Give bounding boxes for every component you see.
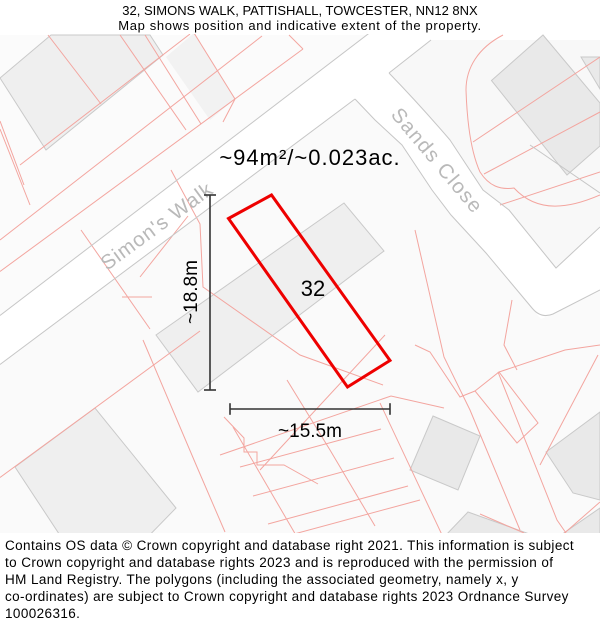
svg-text:~15.5m: ~15.5m xyxy=(278,421,342,442)
svg-text:~18.8m: ~18.8m xyxy=(181,260,202,324)
svg-text:~94m²/~0.023ac.: ~94m²/~0.023ac. xyxy=(219,145,400,170)
svg-text:32: 32 xyxy=(301,276,325,301)
